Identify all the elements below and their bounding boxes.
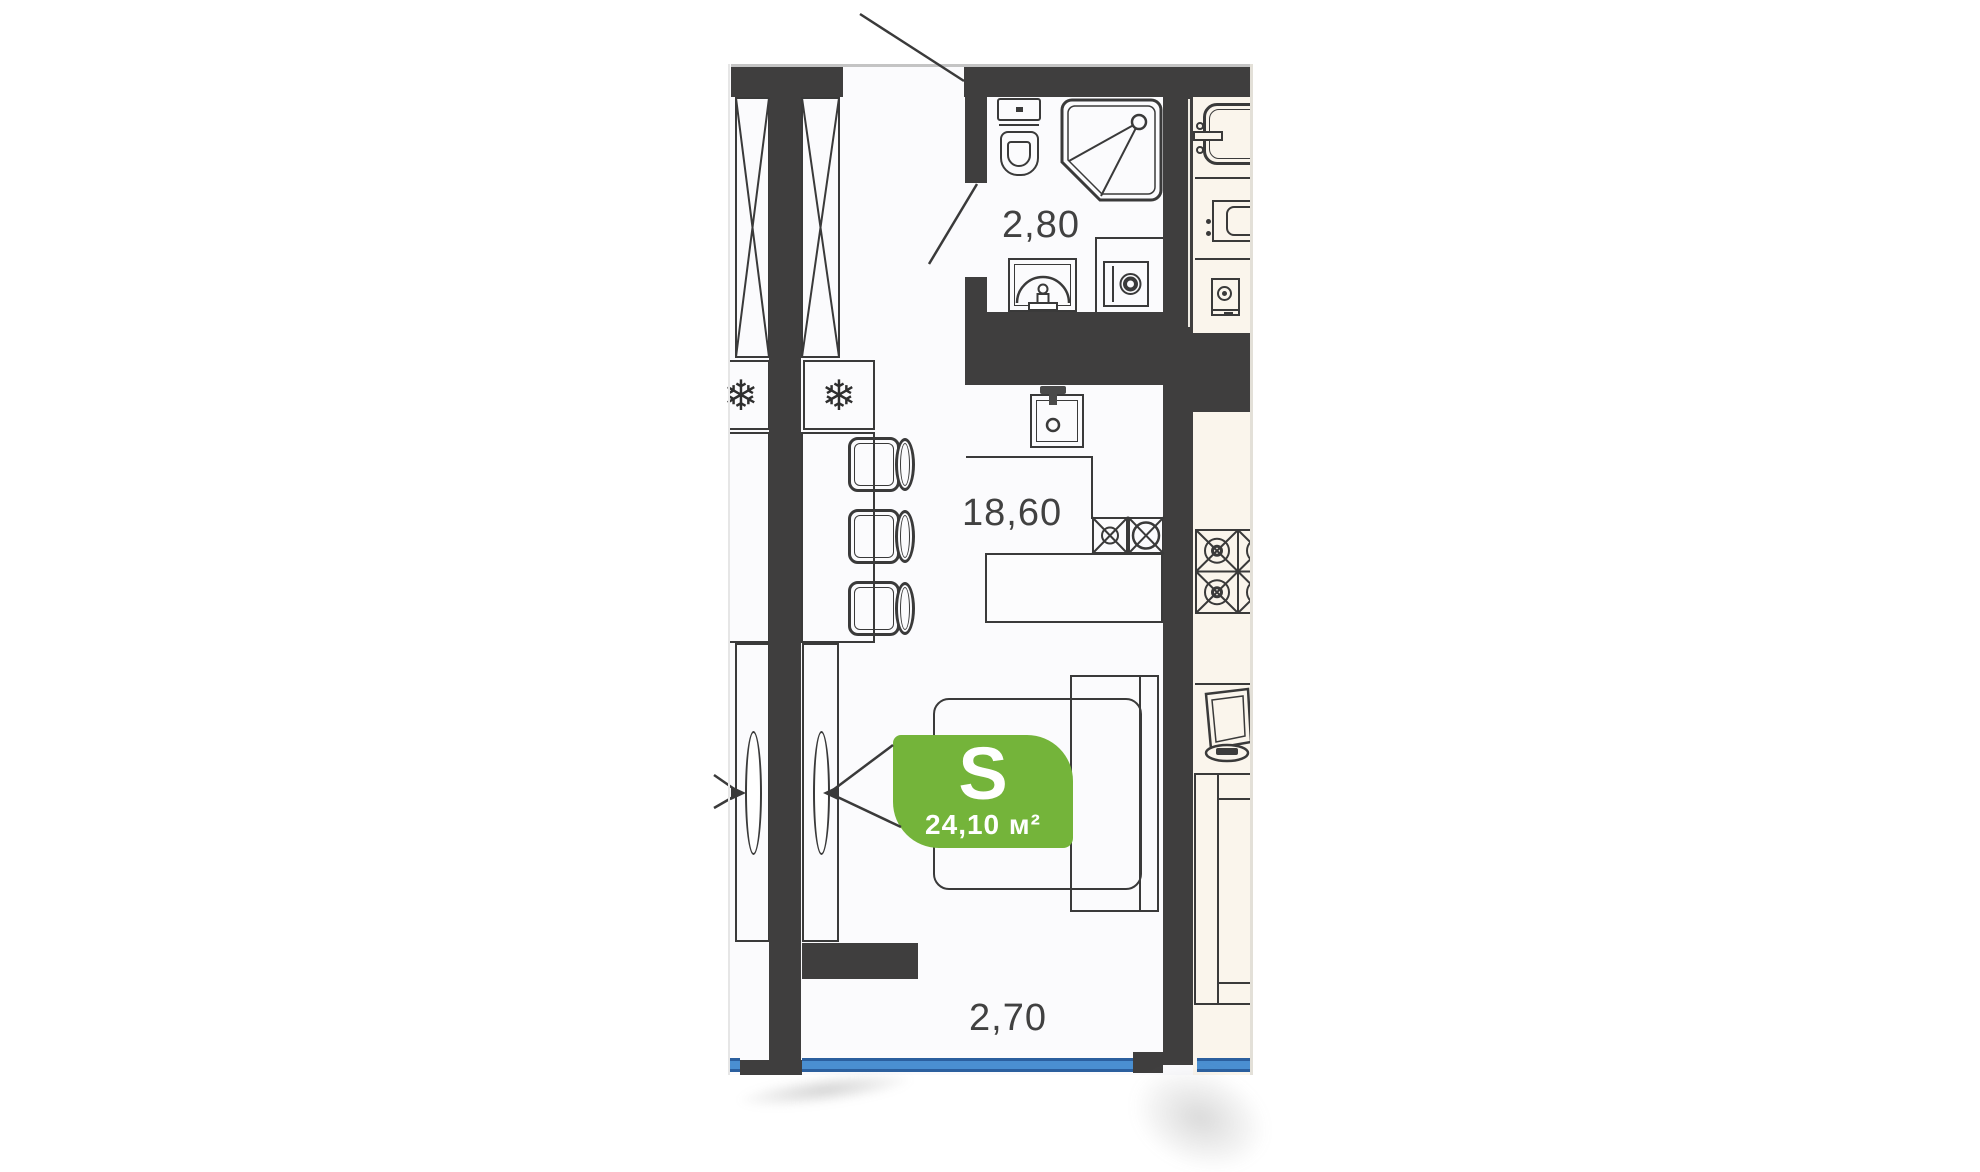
area-badge[interactable]: S 24,10 м² bbox=[893, 735, 1073, 848]
floorplan-canvas: ❄ ❄ 2,80 18,60 bbox=[0, 0, 1980, 1172]
neighbor-sink-bowl-icon bbox=[1226, 206, 1253, 236]
neighbor-door-leaf-icon bbox=[745, 731, 762, 855]
washbasin-icon bbox=[1008, 258, 1077, 312]
snowflake-icon: ❄ bbox=[821, 371, 856, 420]
neighbor-bar-table bbox=[728, 432, 770, 643]
washing-machine-drawer bbox=[1112, 266, 1114, 302]
toilet-bowl-inner bbox=[1007, 141, 1031, 167]
stool-seat bbox=[848, 581, 900, 636]
vent-shaft bbox=[801, 97, 840, 358]
sink-dot bbox=[1206, 231, 1211, 236]
stool-back bbox=[895, 438, 915, 491]
stool-back bbox=[895, 582, 915, 635]
bathroom-area-label: 2,80 bbox=[1002, 204, 1080, 247]
counter-divider bbox=[1195, 258, 1253, 260]
window-wall-label: 2,70 bbox=[969, 997, 1047, 1040]
kitchen-sink-icon bbox=[1030, 394, 1084, 448]
badge-letter: S bbox=[958, 744, 1007, 805]
neighbor-fridge-icon: ❄ bbox=[728, 360, 770, 430]
wall bbox=[964, 67, 1250, 97]
plan-crop-edge-left bbox=[728, 64, 730, 1075]
stool-seat bbox=[848, 509, 900, 564]
bathtub-knob-icon bbox=[1196, 122, 1204, 130]
wall bbox=[802, 943, 918, 979]
badge-area-value: 24,10 м² bbox=[925, 809, 1041, 841]
toilet-button bbox=[1016, 107, 1023, 112]
stool-back bbox=[895, 510, 915, 563]
counter-edge bbox=[1091, 456, 1093, 519]
washing-machine-panel-dash bbox=[1224, 312, 1233, 316]
washing-machine-door-core bbox=[1222, 291, 1227, 296]
vent-shaft bbox=[735, 97, 770, 358]
wall bbox=[731, 67, 843, 97]
bathtub-knob-icon bbox=[1196, 146, 1204, 154]
cooktop-burner bbox=[1092, 517, 1128, 554]
living-area-label: 18,60 bbox=[962, 492, 1062, 535]
bath-niche-line bbox=[1095, 237, 1097, 312]
neighbor-floor-right bbox=[1193, 64, 1253, 1075]
wall bbox=[965, 277, 987, 312]
door-leaf-icon bbox=[813, 731, 830, 855]
neighbor-bed-pillow-line bbox=[1217, 773, 1219, 1005]
window-line bbox=[802, 1058, 1133, 1072]
toilet-tank-lid bbox=[999, 124, 1039, 126]
plan-crop-edge-right bbox=[1250, 64, 1253, 1075]
bath-niche-line bbox=[1095, 237, 1163, 239]
neighbor-bed-line bbox=[1219, 798, 1253, 800]
counter-divider bbox=[1195, 177, 1253, 179]
counter-divider bbox=[1195, 683, 1253, 685]
cooktop-burner bbox=[1128, 517, 1164, 554]
bathtub-faucet-bar-icon bbox=[1193, 131, 1223, 141]
neighbor-bed-line bbox=[1219, 982, 1253, 984]
stool-seat bbox=[848, 437, 900, 492]
wall bbox=[740, 1060, 802, 1075]
counter-edge bbox=[966, 456, 1093, 458]
neighbor-bed bbox=[1194, 773, 1253, 1005]
wall bbox=[965, 97, 987, 183]
washing-machine-panel bbox=[1212, 309, 1238, 311]
sink-dot bbox=[1206, 219, 1211, 224]
wall-gap-line bbox=[1188, 99, 1190, 327]
washing-machine-icon bbox=[1103, 261, 1149, 307]
wall bbox=[965, 312, 1193, 385]
wall bbox=[769, 97, 801, 1060]
fridge-icon: ❄ bbox=[803, 360, 875, 430]
kitchen-island bbox=[985, 553, 1163, 623]
wall-slab-right bbox=[1193, 333, 1253, 412]
